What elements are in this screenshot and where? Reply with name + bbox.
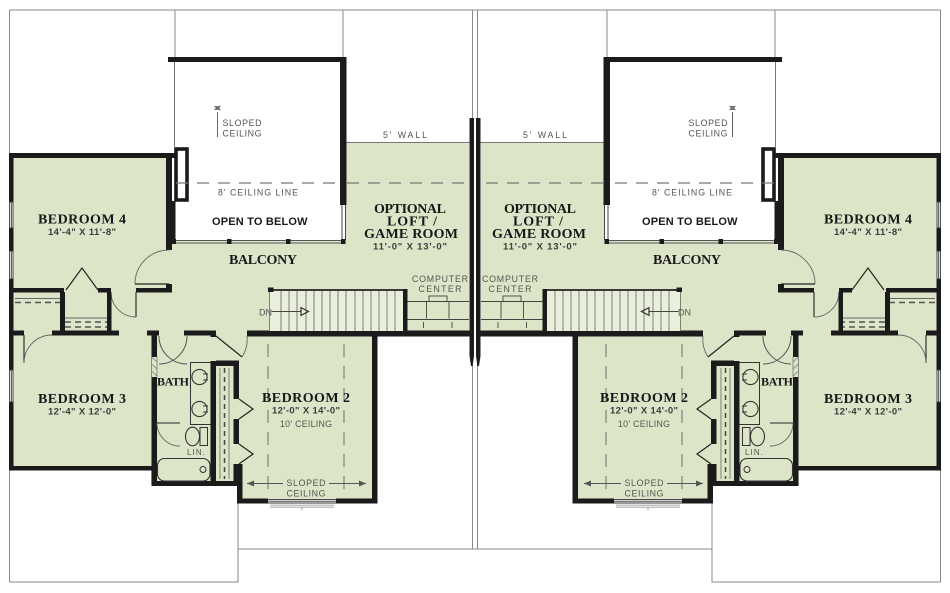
svg-text:11'-0" X 13'-0": 11'-0" X 13'-0" [503,242,577,253]
svg-text:BEDROOM 2: BEDROOM 2 [600,391,688,406]
svg-text:12'-4" X 12'-0": 12'-4" X 12'-0" [834,407,902,418]
svg-text:14'-4" X 11'-8": 14'-4" X 11'-8" [834,227,902,238]
svg-text:SLOPED: SLOPED [689,118,728,128]
svg-text:12'-0" X 14'-0": 12'-0" X 14'-0" [272,406,340,417]
svg-text:OPEN TO BELOW: OPEN TO BELOW [212,216,308,228]
svg-text:OPEN TO BELOW: OPEN TO BELOW [642,216,738,228]
svg-text:GAME ROOM: GAME ROOM [364,227,458,242]
svg-text:SLOPED: SLOPED [625,478,664,488]
svg-text:BEDROOM 4: BEDROOM 4 [38,213,126,228]
svg-text:BATH: BATH [761,375,794,389]
svg-text:8' CEILING LINE: 8' CEILING LINE [218,188,298,198]
svg-text:BEDROOM 4: BEDROOM 4 [824,213,912,228]
svg-text:DN: DN [678,308,691,318]
svg-text:SLOPED: SLOPED [223,118,262,128]
svg-text:BEDROOM 3: BEDROOM 3 [824,392,912,407]
svg-text:14'-4" X 11'-8": 14'-4" X 11'-8" [48,227,116,238]
svg-text:10' CEILING: 10' CEILING [280,419,332,429]
svg-text:8' CEILING LINE: 8' CEILING LINE [652,188,732,198]
svg-text:COMPUTER: COMPUTER [412,274,468,284]
svg-text:CEILING: CEILING [223,129,262,139]
svg-text:BATH: BATH [157,375,190,389]
svg-text:DN: DN [259,308,272,318]
svg-text:CEILING: CEILING [689,129,728,139]
svg-text:10' CEILING: 10' CEILING [618,419,670,429]
svg-text:GAME ROOM: GAME ROOM [492,227,586,242]
svg-text:SLOPED: SLOPED [287,478,326,488]
svg-text:12'-0" X 14'-0": 12'-0" X 14'-0" [610,406,678,417]
svg-text:12'-4" X 12'-0": 12'-4" X 12'-0" [48,407,116,418]
svg-text:LIN.: LIN. [187,448,205,457]
svg-text:BALCONY: BALCONY [229,253,297,268]
svg-text:CEILING: CEILING [625,489,664,499]
svg-text:BALCONY: BALCONY [653,253,721,268]
svg-text:BEDROOM 3: BEDROOM 3 [38,392,126,407]
svg-text:CEILING: CEILING [287,489,326,499]
svg-text:LIN.: LIN. [745,448,763,457]
svg-text:11'-0" X 13'-0": 11'-0" X 13'-0" [373,242,447,253]
svg-text:BEDROOM 2: BEDROOM 2 [262,391,350,406]
svg-text:COMPUTER: COMPUTER [482,274,538,284]
